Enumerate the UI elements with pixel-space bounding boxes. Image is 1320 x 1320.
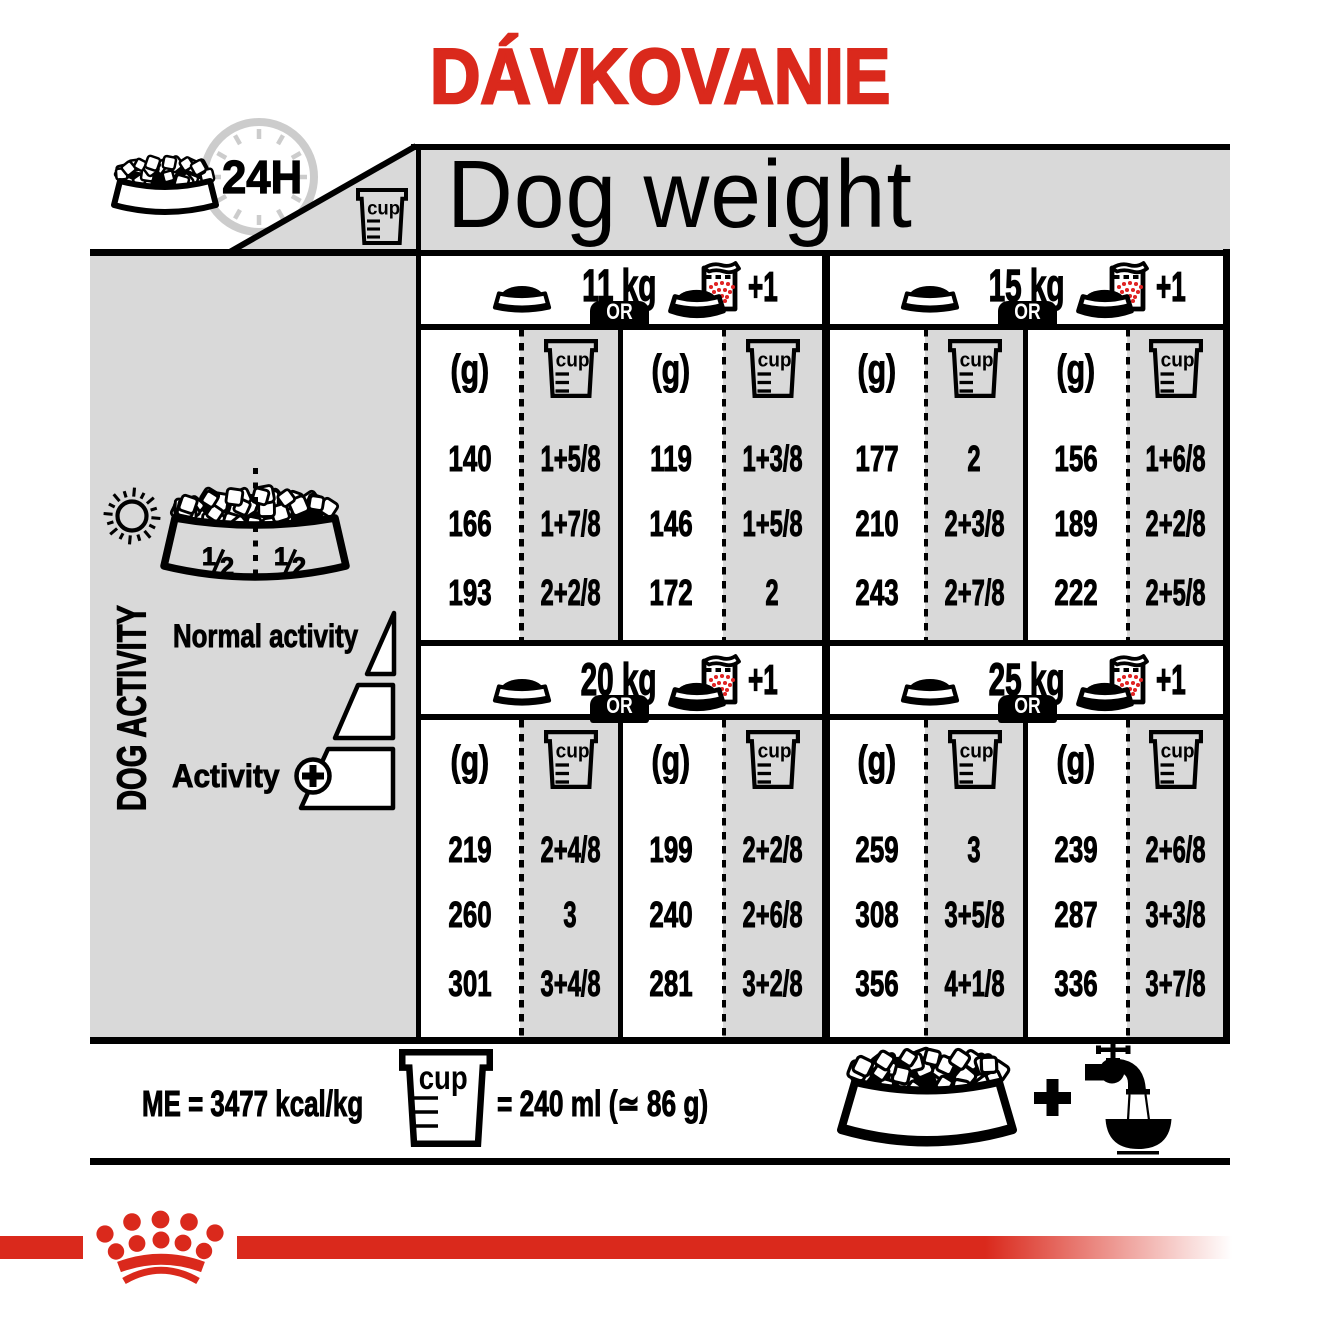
svg-text:cup: cup <box>959 741 993 763</box>
svg-text:cup: cup <box>555 350 589 372</box>
svg-text:cup: cup <box>367 199 400 220</box>
svg-text:cup: cup <box>555 741 589 763</box>
svg-text:cup: cup <box>419 1059 468 1096</box>
svg-text:cup: cup <box>757 350 791 372</box>
svg-text:cup: cup <box>1161 741 1195 763</box>
svg-text:cup: cup <box>1161 350 1195 372</box>
svg-text:cup: cup <box>757 741 791 763</box>
svg-text:cup: cup <box>959 350 993 372</box>
